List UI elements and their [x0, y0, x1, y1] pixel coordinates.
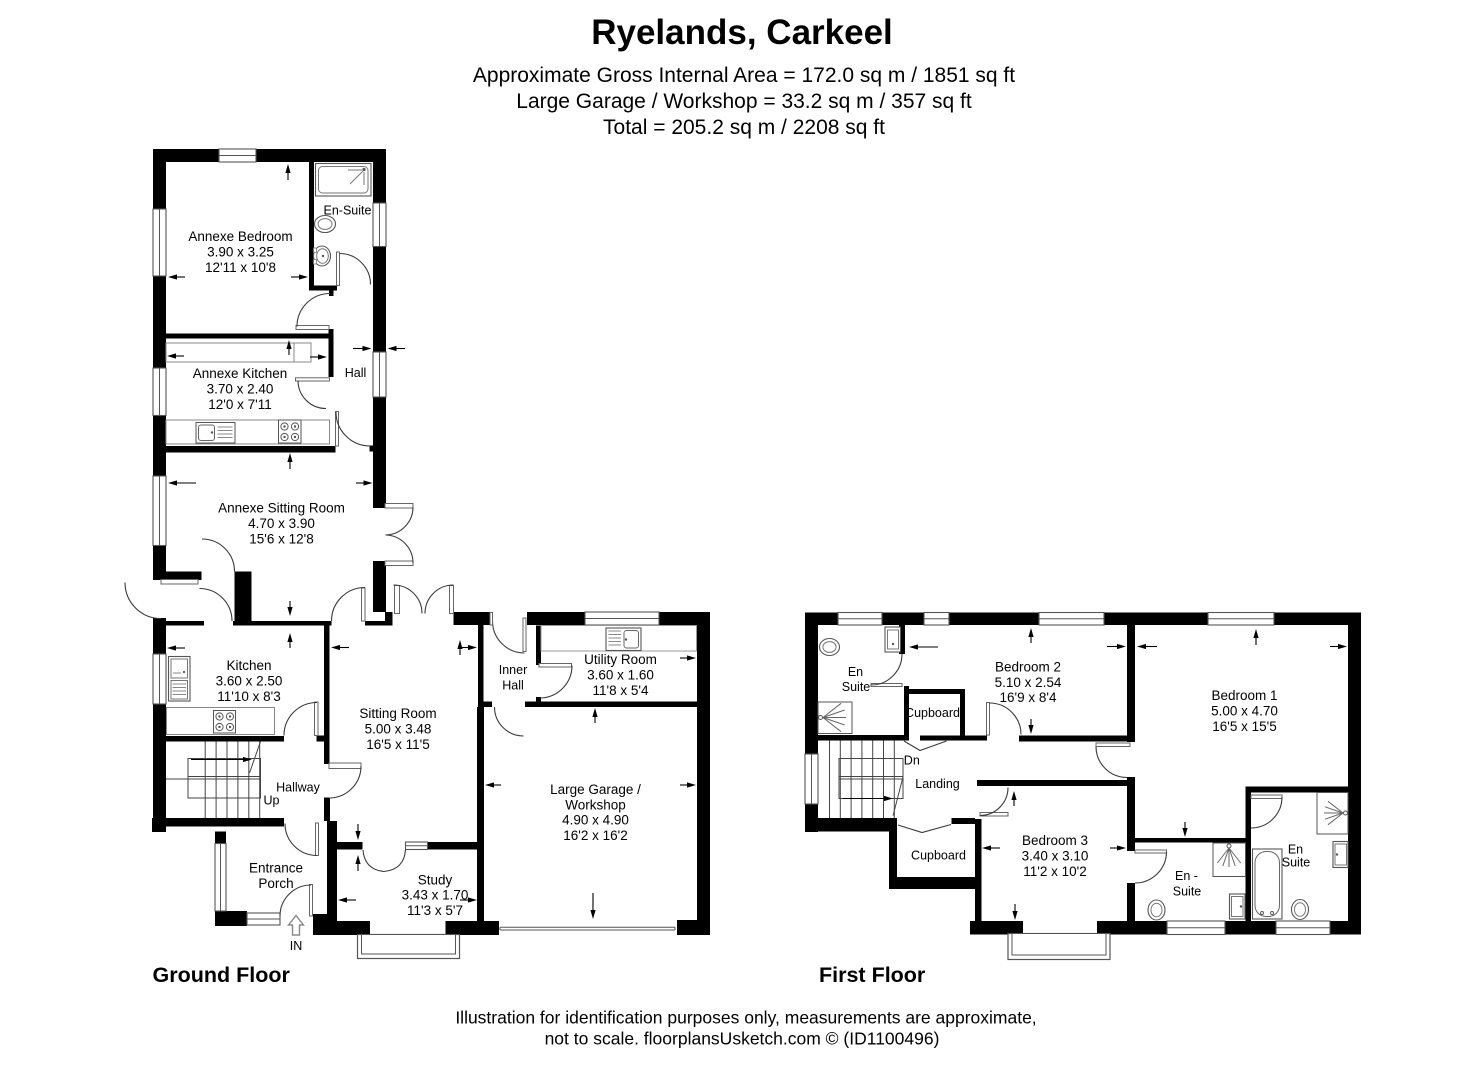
svg-text:Ryelands, Carkeel: Ryelands, Carkeel — [591, 13, 893, 52]
svg-text:Bedroom 3: Bedroom 3 — [1022, 833, 1088, 848]
svg-text:4.90 x 4.90: 4.90 x 4.90 — [562, 813, 629, 828]
svg-text:Suite: Suite — [1173, 884, 1202, 898]
svg-text:Dn: Dn — [904, 754, 920, 768]
svg-text:Suite: Suite — [1282, 855, 1311, 869]
svg-text:5.00 x 3.48: 5.00 x 3.48 — [365, 722, 432, 737]
svg-text:Suite: Suite — [842, 680, 871, 694]
svg-text:Utility Room: Utility Room — [584, 652, 657, 667]
svg-text:Annexe Kitchen: Annexe Kitchen — [193, 366, 288, 381]
svg-text:Annexe Bedroom: Annexe Bedroom — [188, 229, 292, 244]
svg-text:Kitchen: Kitchen — [226, 658, 271, 673]
svg-text:Hall: Hall — [345, 366, 367, 380]
svg-text:16'2 x 16'2: 16'2 x 16'2 — [563, 828, 627, 843]
svg-text:Inner: Inner — [499, 663, 528, 677]
svg-text:En-Suite: En-Suite — [324, 203, 372, 217]
svg-text:16'5 x 11'5: 16'5 x 11'5 — [366, 737, 429, 752]
svg-text:Hallway: Hallway — [276, 780, 321, 794]
svg-text:3.43 x 1.70: 3.43 x 1.70 — [402, 888, 469, 903]
svg-text:En -: En - — [1175, 869, 1198, 883]
svg-text:Illustration for identificatio: Illustration for identification purposes… — [455, 1008, 1036, 1028]
svg-text:Bedroom 1: Bedroom 1 — [1211, 688, 1277, 703]
svg-text:4.70 x 3.90: 4.70 x 3.90 — [248, 516, 315, 531]
svg-text:Sitting Room: Sitting Room — [359, 706, 436, 721]
svg-text:Large Garage /: Large Garage / — [550, 782, 641, 797]
svg-text:Approximate Gross Internal Are: Approximate Gross Internal Area = 172.0 … — [473, 64, 1015, 87]
svg-text:11'2 x 10'2: 11'2 x 10'2 — [1023, 864, 1086, 879]
svg-text:En: En — [1288, 842, 1303, 856]
svg-text:11'10 x 8'3: 11'10 x 8'3 — [217, 689, 280, 704]
svg-text:Porch: Porch — [258, 876, 293, 891]
svg-text:Up: Up — [264, 793, 280, 807]
svg-text:Landing: Landing — [915, 777, 960, 791]
svg-text:Ground Floor: Ground Floor — [153, 963, 291, 987]
svg-text:Entrance: Entrance — [249, 861, 303, 876]
svg-text:15'6 x 12'8: 15'6 x 12'8 — [249, 531, 313, 546]
svg-text:Hall: Hall — [502, 678, 524, 692]
svg-text:En: En — [848, 665, 863, 679]
svg-text:Workshop: Workshop — [565, 797, 626, 812]
svg-text:5.00 x 4.70: 5.00 x 4.70 — [1211, 704, 1278, 719]
svg-text:Cupboard: Cupboard — [911, 848, 966, 862]
svg-text:3.60 x 1.60: 3.60 x 1.60 — [587, 668, 654, 683]
svg-text:IN: IN — [290, 939, 303, 953]
svg-text:3.40 x 3.10: 3.40 x 3.10 — [1022, 849, 1089, 864]
svg-text:11'3 x 5'7: 11'3 x 5'7 — [407, 903, 463, 918]
svg-text:Total = 205.2 sq m / 2208 sq f: Total = 205.2 sq m / 2208 sq ft — [603, 116, 885, 139]
svg-text:First Floor: First Floor — [819, 963, 926, 987]
svg-text:Large Garage / Workshop = 33.2: Large Garage / Workshop = 33.2 sq m / 35… — [516, 90, 972, 113]
svg-text:5.10 x 2.54: 5.10 x 2.54 — [995, 675, 1062, 690]
svg-text:12'11 x 10'8: 12'11 x 10'8 — [205, 260, 276, 275]
svg-text:3.90 x 3.25: 3.90 x 3.25 — [207, 244, 274, 259]
svg-text:3.60 x 2.50: 3.60 x 2.50 — [216, 674, 283, 689]
svg-text:12'0 x 7'11: 12'0 x 7'11 — [208, 397, 271, 412]
svg-text:3.70 x 2.40: 3.70 x 2.40 — [207, 382, 274, 397]
svg-text:Cupboard: Cupboard — [905, 706, 960, 720]
svg-text:not to scale. floorplansUsketc: not to scale. floorplansUsketch.com © (I… — [545, 1029, 940, 1049]
svg-text:16'9 x 8'4: 16'9 x 8'4 — [1000, 690, 1057, 705]
svg-text:Study: Study — [418, 872, 453, 887]
svg-text:11'8 x 5'4: 11'8 x 5'4 — [593, 683, 649, 698]
svg-text:Bedroom 2: Bedroom 2 — [995, 659, 1061, 674]
svg-text:16'5 x 15'5: 16'5 x 15'5 — [1212, 719, 1276, 734]
svg-text:Annexe Sitting Room: Annexe Sitting Room — [218, 501, 345, 516]
